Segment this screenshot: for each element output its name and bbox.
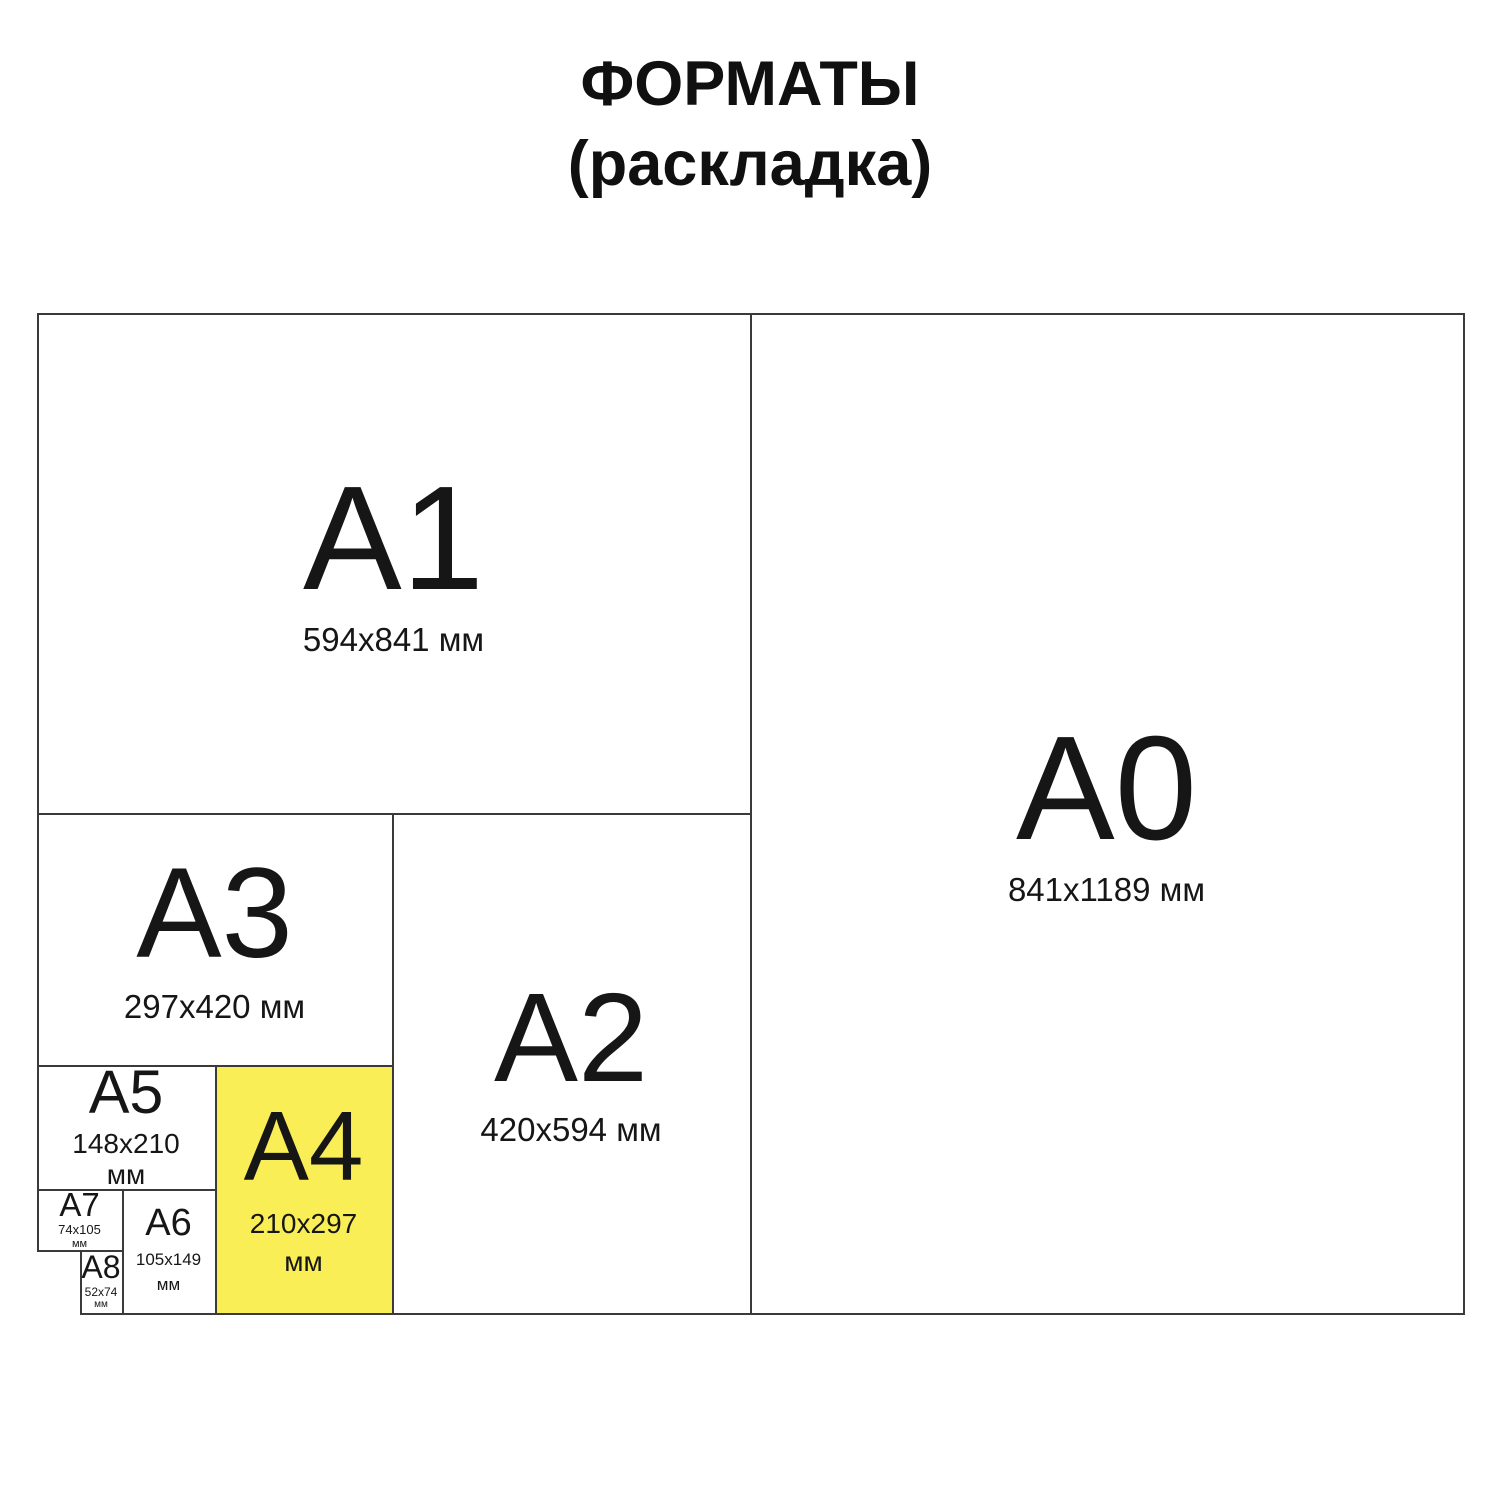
format-a0-name: A0 [1016, 715, 1197, 863]
format-a3-name: A3 [136, 850, 293, 978]
format-a8-size: 52x74 мм [85, 1285, 118, 1311]
format-a6-size-line1: 105x149 [136, 1247, 201, 1273]
format-a5-box: A5 148x210 мм [37, 1065, 215, 1189]
format-a7-size-line1: 74x105 [58, 1222, 101, 1238]
format-a7-name: A7 [59, 1189, 99, 1220]
border-a8-left-line [80, 1250, 82, 1315]
format-a8-size-line2: мм [85, 1299, 118, 1311]
diagram-title-line2: (раскладка) [0, 124, 1500, 204]
format-a2-size: 420x594 мм [480, 1109, 661, 1150]
format-a3-box: A3 297x420 мм [37, 813, 392, 1065]
format-a8-box: A8 52x74 мм [80, 1250, 122, 1313]
format-a5-name: A5 [89, 1064, 164, 1122]
format-a5-size: 148x210 мм [72, 1128, 179, 1191]
format-a6-box: A6 105x149 мм [122, 1190, 215, 1313]
divider-a7-bottom [37, 1250, 124, 1252]
border-right-line [1463, 313, 1465, 1315]
format-a5-size-line1: 148x210 [72, 1128, 179, 1159]
divider-a3-a2 [392, 813, 394, 1315]
divider-a5-bottom [37, 1189, 217, 1191]
format-a8-name: A8 [81, 1252, 120, 1282]
border-bottom-line [80, 1313, 1465, 1315]
border-left-line [37, 313, 39, 1252]
format-a6-size-line2: мм [136, 1272, 201, 1298]
format-a6-name: A6 [145, 1205, 191, 1241]
format-a1-size: 594x841 мм [303, 619, 484, 660]
format-a7-box: A7 74x105 мм [37, 1190, 122, 1250]
format-a6-size: 105x149 мм [136, 1247, 201, 1298]
format-a3-size: 297x420 мм [124, 986, 305, 1027]
format-a7-size: 74x105 мм [58, 1222, 101, 1251]
format-a4-size-line1: 210x297 [250, 1205, 357, 1243]
format-a2-box: A2 420x594 мм [392, 813, 750, 1313]
format-a4-size-line2: мм [250, 1243, 357, 1281]
diagram-title-line1: ФОРМАТЫ [0, 44, 1500, 124]
format-a2-name: A2 [494, 975, 648, 1101]
format-a0-size: 841x1189 мм [1008, 869, 1205, 910]
format-a4-name: A4 [244, 1097, 364, 1195]
divider-a3-bottom [37, 1065, 394, 1067]
paper-formats-diagram: { "title": { "line1": "ФОРМАТЫ", "line2"… [0, 0, 1500, 1500]
divider-a1-bottom [37, 813, 752, 815]
format-a8-size-line1: 52x74 [85, 1285, 118, 1299]
format-a4-size: 210x297 мм [250, 1205, 357, 1281]
format-a1-box: A1 594x841 мм [37, 313, 750, 813]
diagram-title: ФОРМАТЫ (раскладка) [0, 44, 1500, 204]
format-a1-name: A1 [303, 465, 484, 613]
format-a0-box: A0 841x1189 мм [750, 313, 1463, 1313]
divider-a7-a6 [122, 1190, 124, 1315]
format-a4-box: A4 210x297 мм [215, 1065, 392, 1313]
